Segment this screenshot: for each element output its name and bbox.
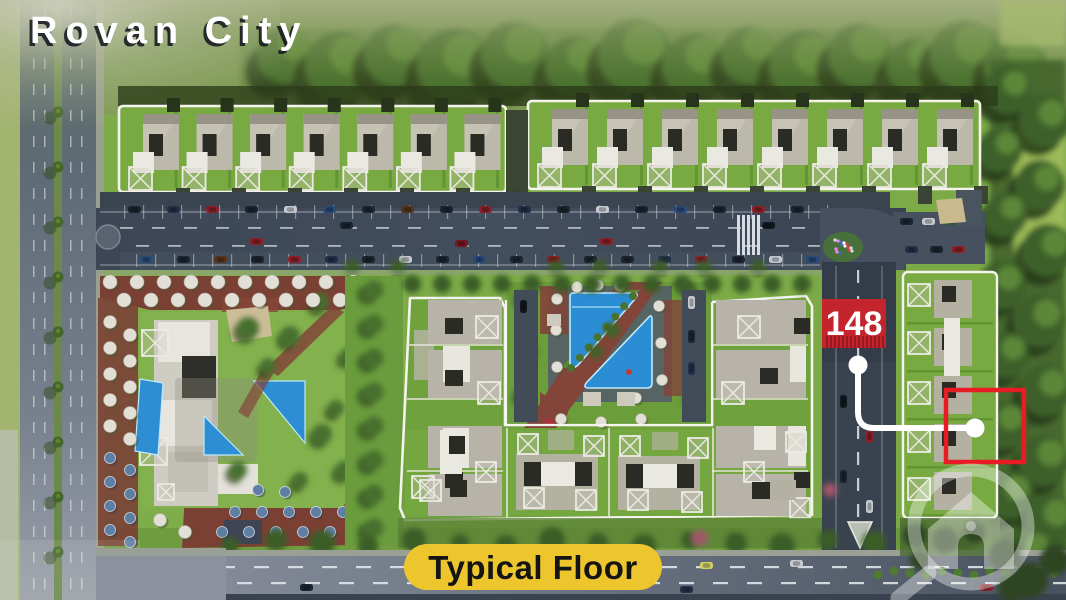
- svg-text:Rovan City: Rovan City: [30, 10, 308, 52]
- svg-text:Typical Floor: Typical Floor: [428, 549, 637, 586]
- svg-text:148: 148: [826, 305, 883, 343]
